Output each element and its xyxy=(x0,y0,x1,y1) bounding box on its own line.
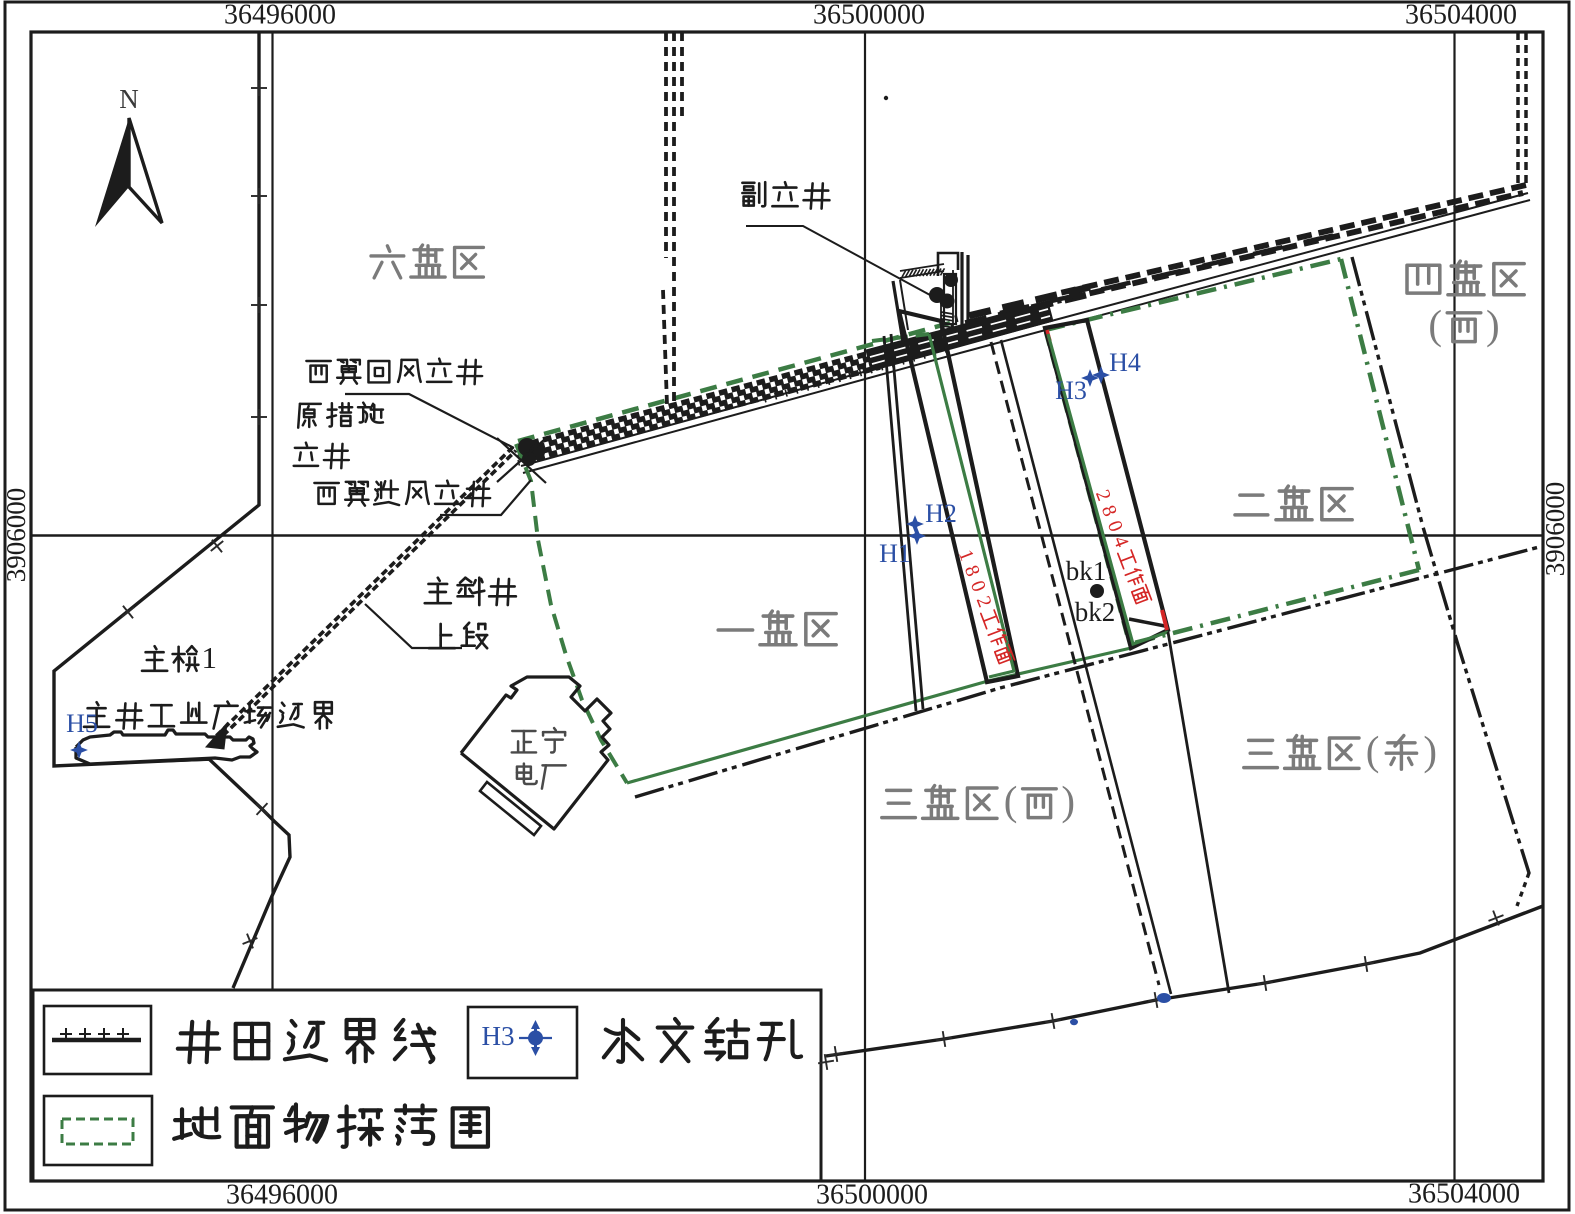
svg-text:bk1: bk1 xyxy=(1066,556,1107,586)
svg-text:1: 1 xyxy=(201,640,217,675)
svg-text:): ) xyxy=(1061,777,1075,823)
svg-text:36496000: 36496000 xyxy=(224,0,336,30)
svg-text:H4: H4 xyxy=(1109,348,1141,377)
svg-text:36500000: 36500000 xyxy=(813,0,925,30)
svg-text:(: ( xyxy=(1428,301,1442,347)
svg-text:36496000: 36496000 xyxy=(226,1179,338,1210)
svg-text:): ) xyxy=(1486,301,1500,347)
svg-text:H3: H3 xyxy=(1055,376,1087,405)
svg-text:H2: H2 xyxy=(925,499,957,528)
svg-text:N: N xyxy=(119,84,139,114)
svg-text:36504000: 36504000 xyxy=(1408,1178,1520,1209)
svg-text:36504000: 36504000 xyxy=(1405,0,1517,30)
svg-text:): ) xyxy=(1423,727,1437,773)
svg-text:bk2: bk2 xyxy=(1075,597,1116,627)
svg-text:H1: H1 xyxy=(879,539,911,568)
svg-text:(: ( xyxy=(1366,727,1380,773)
svg-text:3906000: 3906000 xyxy=(1,488,31,583)
svg-text:36500000: 36500000 xyxy=(816,1179,928,1210)
svg-text:H3: H3 xyxy=(482,1021,515,1051)
svg-text:(: ( xyxy=(1004,777,1018,823)
svg-text:3906000: 3906000 xyxy=(1540,482,1570,577)
svg-text:H5: H5 xyxy=(66,709,98,738)
